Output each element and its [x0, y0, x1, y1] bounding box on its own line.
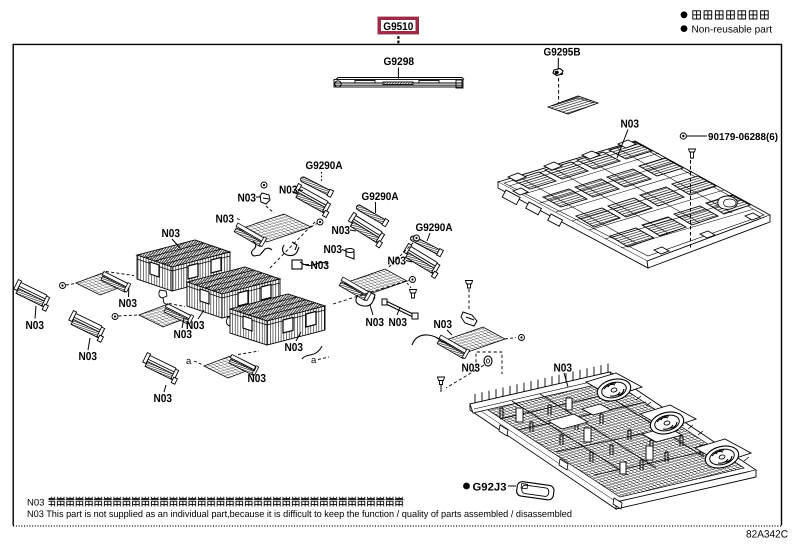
svg-text:G9290A: G9290A [416, 222, 453, 234]
svg-text:N03: N03 [216, 214, 235, 226]
svg-text:G9290A: G9290A [306, 160, 343, 172]
svg-text:N03 This part is not supplied: N03 This part is not supplied as an indi… [27, 509, 572, 520]
svg-text:N03: N03 [554, 363, 573, 375]
svg-text:N03: N03 [154, 393, 173, 405]
svg-text:G9298: G9298 [384, 56, 415, 68]
svg-text:G92J3: G92J3 [473, 482, 507, 494]
svg-text:N03: N03 [279, 185, 298, 197]
svg-text:G9295B: G9295B [544, 47, 581, 59]
svg-text:N03: N03 [26, 320, 45, 332]
svg-text:N03: N03 [238, 193, 257, 205]
svg-text:82A342C: 82A342C [746, 529, 788, 541]
svg-text:N03: N03 [366, 317, 385, 329]
svg-text:N03: N03 [79, 351, 98, 363]
svg-text:N03: N03 [621, 119, 640, 131]
svg-text:N03: N03 [389, 317, 408, 329]
svg-text:N03: N03 [162, 228, 181, 240]
svg-text:Non-reusable part: Non-reusable part [692, 24, 773, 35]
svg-text:N03: N03 [119, 298, 138, 310]
svg-text:N03: N03 [186, 320, 205, 332]
svg-text:N03: N03 [248, 373, 267, 385]
svg-text:90179-06288(6): 90179-06288(6) [708, 132, 778, 143]
svg-text:N03: N03 [311, 260, 330, 272]
svg-text:N03: N03 [332, 225, 351, 237]
svg-text:N03: N03 [27, 498, 44, 509]
svg-text:N03: N03 [285, 342, 304, 354]
svg-text:N03: N03 [324, 244, 343, 256]
svg-text:a: a [186, 356, 192, 367]
svg-text:N03: N03 [434, 319, 453, 331]
svg-text:G9290A: G9290A [362, 191, 399, 203]
svg-text:G9510: G9510 [383, 21, 413, 33]
svg-text:a: a [311, 355, 317, 366]
